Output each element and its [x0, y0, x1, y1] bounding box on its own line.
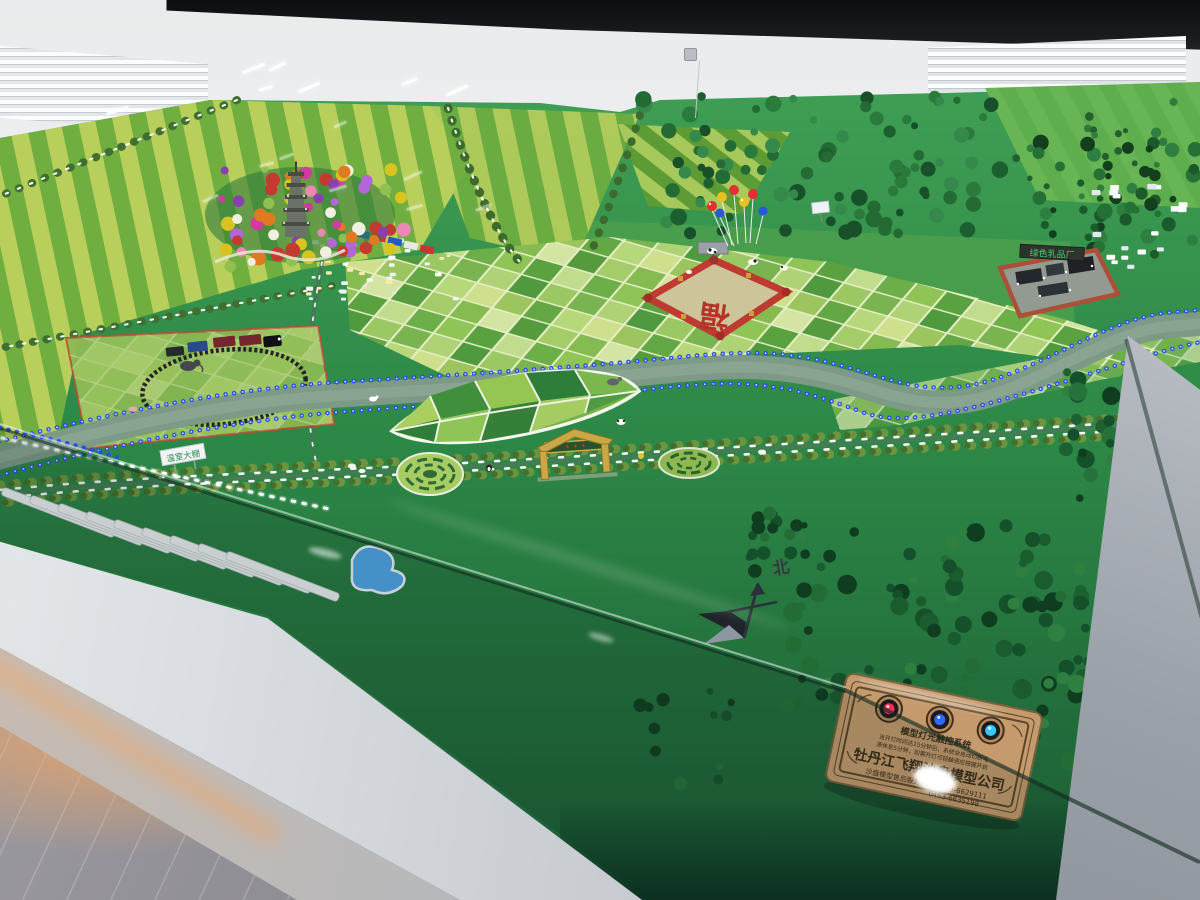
compass-north-label: 北 — [771, 557, 791, 580]
showroom-photo: 绿色乳品厂 福 — [0, 0, 1200, 900]
maze-circle-right — [659, 448, 719, 478]
maze-circle-left — [397, 453, 463, 495]
glass-clip-bracket — [684, 48, 697, 61]
fortune-character: 福 — [697, 296, 733, 335]
